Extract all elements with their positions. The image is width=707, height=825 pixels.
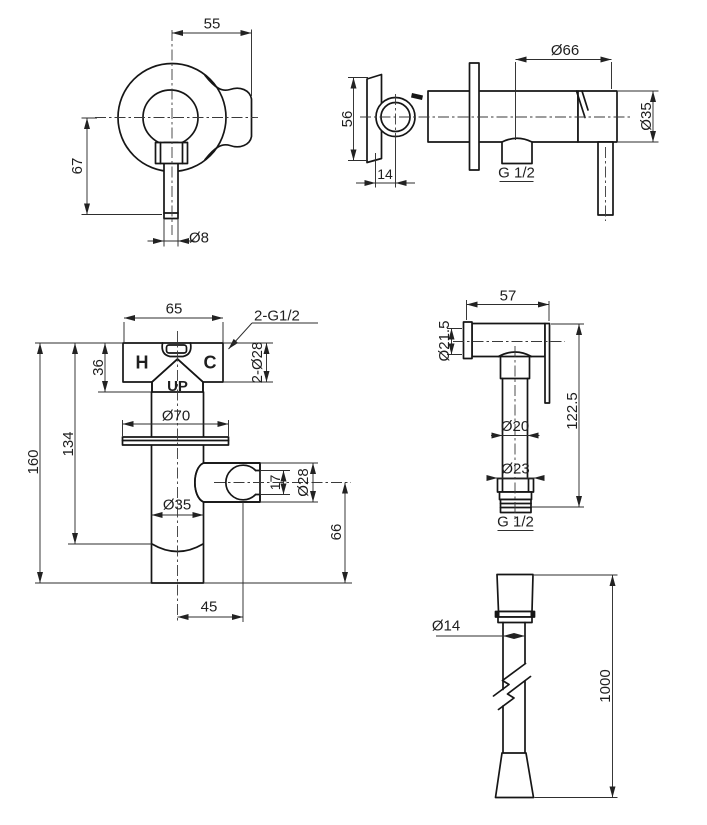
- dim-label-body-dia: Ø35: [638, 102, 655, 130]
- cold-label: C: [204, 353, 217, 373]
- knob-indicator-mark: [411, 93, 423, 100]
- mixer-front-geometry: [118, 64, 252, 219]
- hose-view: Ø14 1000: [432, 575, 618, 798]
- dim-label-depth: 56: [339, 111, 356, 128]
- mixer-side-geometry: [367, 63, 617, 215]
- dim-label-total-height: 160: [25, 449, 42, 474]
- inlet-threads-label: 2-G1/2: [254, 308, 300, 325]
- hose-geometry: [494, 575, 535, 798]
- outlet-thread-label: G 1/2: [498, 165, 535, 182]
- valve-front-geometry: [123, 343, 261, 583]
- valve-front-view: 65 2-G1/2 H C UP 36 2-Ø28 Ø70 Ø35 160 13…: [25, 301, 352, 623]
- dim-label-head-dia: Ø21.5: [436, 321, 453, 362]
- hose-bottom-fitting: [496, 753, 534, 798]
- technical-drawing-page: 55 67 Ø8: [0, 0, 707, 825]
- handle-hub-circle: [143, 90, 198, 145]
- sprayer-head-cap: [464, 322, 473, 359]
- sprayer-thread: [501, 500, 532, 513]
- mixer-front-view: 55 67 Ø8: [69, 16, 258, 247]
- dim-label-height: 67: [69, 158, 86, 175]
- sprayer-thread-label: G 1/2: [497, 514, 534, 531]
- sprayer-washer: [500, 492, 532, 500]
- dim-label-sprayer-height: 122.5: [564, 392, 581, 430]
- dim-label-trim-dia: 2-Ø28: [249, 342, 266, 384]
- cross-handle-bar: [470, 63, 480, 170]
- dim-label-escutcheon-dia: Ø66: [551, 42, 579, 59]
- dim-label-width: 55: [204, 16, 221, 33]
- dim-label-holder-dia: Ø28: [295, 468, 312, 496]
- shower-holder: [195, 463, 260, 502]
- mixer-side-view: Ø66 Ø35 56 14 G 1/2: [339, 42, 659, 221]
- dim-label-holder-height: 66: [328, 524, 345, 541]
- dim-label-flange-depth: 14: [377, 166, 393, 182]
- dim-label-flange-dia: Ø70: [162, 408, 190, 425]
- dim-label-hose-length: 1000: [597, 669, 614, 702]
- sprayer-head: [472, 324, 545, 357]
- dim-label-holder-offset: 45: [201, 599, 218, 616]
- dim-label-hose-dia: Ø14: [432, 618, 460, 635]
- hot-label: H: [136, 353, 149, 373]
- dim-label-plate-height: 36: [90, 359, 107, 376]
- dim-label-handle-dia: Ø8: [189, 230, 209, 247]
- mixer-body: [428, 91, 578, 142]
- dim-label-head-length: 57: [500, 288, 517, 305]
- bidet-mixer-technical-drawing: 55 67 Ø8: [0, 0, 707, 825]
- dim-label-grip-dia: Ø20: [501, 418, 529, 435]
- up-label: UP: [167, 378, 188, 395]
- hose-tube: [503, 623, 525, 754]
- dim-label-body-height: 134: [60, 431, 77, 456]
- hose-top-fitting: [497, 575, 533, 612]
- dim-label-body-dia: Ø35: [163, 497, 191, 514]
- dim-label-plate-width: 65: [166, 301, 183, 318]
- dim-label-nut-dia: Ø23: [501, 461, 529, 478]
- sprayer-view: 57 Ø21.5 122.5 Ø20 Ø23 G 1/2: [436, 288, 584, 531]
- sprayer-lever: [545, 324, 550, 404]
- dim-label-slot-height: 17: [267, 475, 283, 491]
- bottom-outlet: [502, 138, 532, 163]
